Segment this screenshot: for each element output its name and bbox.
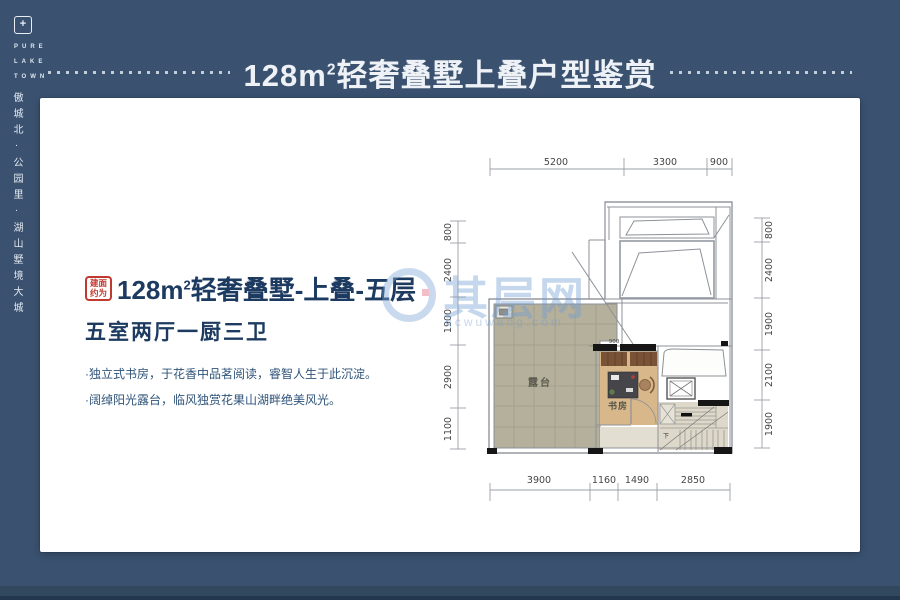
feature-bullet: ·独立式书房，于花香中品茗阅读，睿智人生于此沉淀。 — [85, 362, 425, 388]
dim-label: 900 — [710, 157, 728, 168]
room-layout-subtitle: 五室两厅一厨三卫 — [85, 316, 425, 346]
poster: 128m2轻奢叠墅上叠户型鉴赏 + PURE LAKE TOWN 傲城北·公园里… — [0, 0, 900, 600]
brand-logo-icon: + — [14, 16, 32, 34]
banner-title: 128m2轻奢叠墅上叠户型鉴赏 — [244, 50, 657, 95]
dim-label: 800 — [764, 221, 775, 239]
unit-title: 128m2轻奢叠墅-上叠-五层 — [117, 270, 416, 307]
dim-label: 5200 — [544, 157, 568, 168]
dotted-line-left — [48, 71, 230, 74]
unit-title-number: 128m — [117, 275, 184, 305]
unit-info: 建面 约为 128m2轻奢叠墅-上叠-五层 五室两厅一厨三卫 ·独立式书房，于花… — [85, 270, 425, 414]
dim-label: 2850 — [681, 475, 705, 486]
dim-label: 2900 — [443, 365, 454, 389]
roof-panel — [662, 349, 726, 376]
banner-title-sup: 2 — [327, 61, 337, 78]
dim-label: 800 — [443, 223, 454, 241]
hallway-floor — [600, 427, 658, 448]
terrace-floor — [494, 304, 617, 448]
brand-word: LAKE — [14, 55, 48, 70]
brand-name: PURE LAKE TOWN — [14, 40, 48, 85]
feature-bullet: ·阔绰阳光露台，临风独赏花果山湖畔绝美风光。 — [85, 388, 425, 414]
dim-label: 2400 — [764, 258, 775, 282]
dim-label: 2400 — [443, 258, 454, 282]
banner-title-text: 轻奢叠墅上叠户型鉴赏 — [336, 58, 656, 93]
content-card: 建面 约为 128m2轻奢叠墅-上叠-五层 五室两厅一厨三卫 ·独立式书房，于花… — [40, 98, 860, 552]
skylight — [667, 378, 695, 399]
dim-label: 1900 — [764, 312, 775, 336]
terrace-label: 露台 — [528, 376, 552, 389]
vertical-slogan: 傲城北·公园里·湖山墅境大城 — [9, 92, 24, 318]
dim-label: 1160 — [592, 475, 616, 486]
area-badge: 建面 约为 — [85, 276, 112, 302]
study-label: 书房 — [608, 400, 628, 412]
stairs-down-label: 下 — [663, 433, 669, 440]
unit-title-text: 轻奢叠墅-上叠-五层 — [191, 275, 416, 305]
brand-word: PURE — [14, 40, 48, 55]
dim-label: 1490 — [625, 475, 649, 486]
unit-title-row: 建面 约为 128m2轻奢叠墅-上叠-五层 — [85, 270, 425, 307]
feature-bullets: ·独立式书房，于花香中品茗阅读，睿智人生于此沉淀。 ·阔绰阳光露台，临风独赏花果… — [85, 362, 425, 414]
dim-label: 1900 — [443, 309, 454, 333]
bottom-strip-dark — [0, 596, 900, 600]
area-badge-line: 约为 — [90, 289, 107, 299]
brand-word: TOWN — [14, 70, 48, 85]
dim-label: 1100 — [443, 417, 454, 441]
opening-dim-label: 900 — [609, 339, 620, 345]
banner: 128m2轻奢叠墅上叠户型鉴赏 — [0, 46, 900, 98]
terrace-drain-inner — [500, 309, 508, 315]
banner-title-number: 128m — [244, 58, 327, 93]
dim-label: 3300 — [653, 157, 677, 168]
dim-label: 3900 — [527, 475, 551, 486]
desk — [608, 372, 638, 398]
dim-label: 1900 — [764, 412, 775, 436]
unit-title-sup: 2 — [184, 277, 191, 292]
dotted-line-right — [670, 71, 852, 74]
floorplan-svg: 下 — [440, 140, 800, 530]
dim-label: 2100 — [764, 363, 775, 387]
